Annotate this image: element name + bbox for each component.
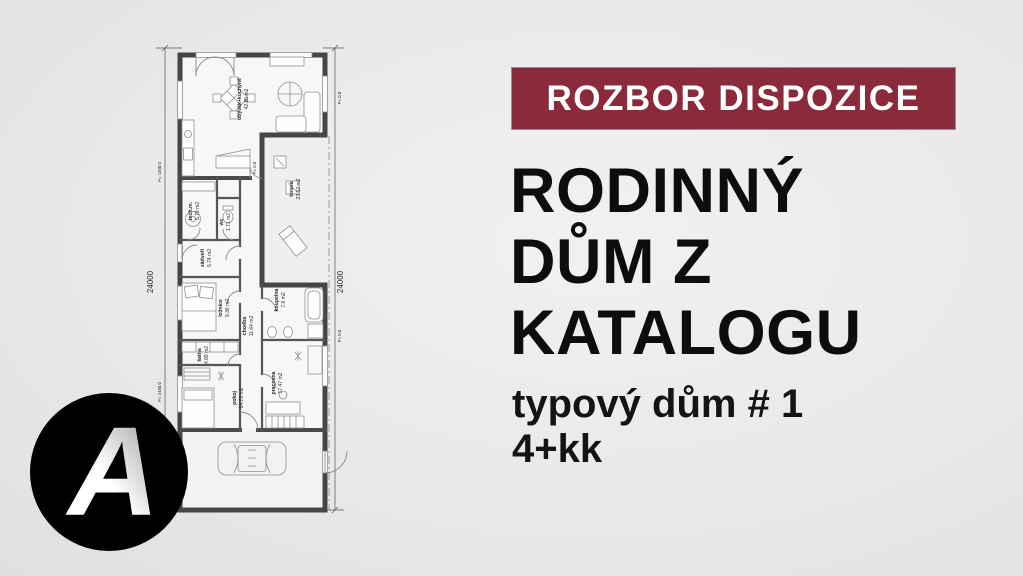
room-area-koupelna: 7.6 m2	[281, 292, 287, 308]
room-name-koupelna: koupelna	[274, 289, 280, 312]
level-label-ground-1: P= 0.0	[337, 91, 342, 104]
room-name-techm: tech.m.	[188, 201, 194, 220]
room-area-terasa: 23.52 m2	[296, 178, 302, 199]
level-label-raised-1: P= 1450.0	[157, 162, 162, 182]
dimension-left: 24000	[146, 270, 155, 293]
room-name-wc: wc	[219, 218, 225, 226]
room-area-chodba: 11.64 m2	[249, 316, 255, 337]
room-area-pokoj: 14.73 m2	[239, 387, 245, 408]
title-line-2: DŮM Z	[510, 227, 862, 298]
room-area-satna: 4.89 m2	[204, 346, 210, 364]
room-name-zadveri: zádveří	[200, 249, 206, 267]
dimension-right: 24000	[336, 270, 345, 293]
room-name-pokoj: pokoj	[232, 391, 238, 405]
banner: ROZBOR DISPOZICE	[511, 67, 956, 130]
banner-label: ROZBOR DISPOZICE	[546, 79, 920, 119]
car-icon	[218, 442, 286, 475]
logo-circle: A	[30, 393, 188, 551]
room-name-loznice: ložnice	[218, 299, 224, 317]
logo-letter-a: A	[65, 401, 159, 542]
thumbnail-canvas: 24000 24000 P= 1450.0 P= 1450.0 P= 0.0 P…	[0, 0, 1023, 576]
title-line-3: KATALOGU	[510, 298, 862, 369]
room-name-obyvak-kuchyne: obývák+kuchyně	[237, 78, 243, 120]
channel-logo: A	[30, 393, 188, 551]
room-area-wc: 1.71 m2	[226, 213, 232, 231]
room-area-obyvak-kuchyne: 42.85 m2	[244, 88, 250, 109]
wardrobe-icon	[182, 342, 238, 352]
level-label-ground-2: P= 0.0	[252, 161, 257, 174]
kitchen-counter-icon	[182, 120, 194, 176]
room-name-satna: šatna	[197, 348, 203, 362]
round-table-icon	[278, 82, 302, 106]
room-area-loznice: 9.36 m2	[225, 299, 231, 317]
room-name-pracovna: pracovna	[271, 371, 277, 394]
title-line-1: RODINNÝ	[510, 156, 862, 227]
sideboard-icon	[270, 57, 304, 66]
room-area-zadveri: 5.74 m2	[207, 249, 213, 267]
room-name-chodba: chodba	[242, 317, 248, 336]
room-area-pracovna: 17.47 m2	[278, 372, 284, 393]
subtitle: typový dům # 1 4+kk	[512, 382, 803, 472]
subtitle-line-2: 4+kk	[512, 427, 803, 472]
room-name-terasa: terasa	[289, 181, 295, 196]
main-title: RODINNÝ DŮM Z KATALOGU	[510, 156, 862, 369]
room-area-techm: 5.79 m2	[195, 202, 201, 220]
subtitle-line-1: typový dům # 1	[512, 382, 803, 427]
bedroom-bed-icon	[182, 283, 216, 331]
level-label-ground-3: P= 0.0	[337, 329, 342, 342]
